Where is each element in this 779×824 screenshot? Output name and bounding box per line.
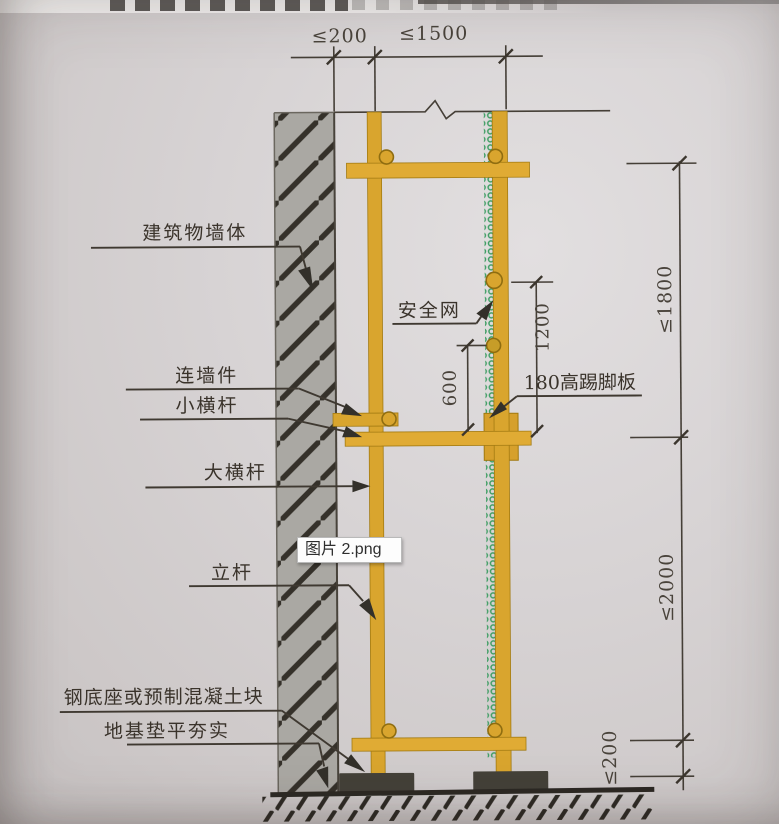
sweep-rail <box>352 737 526 751</box>
callout-toe-board: 180高踢脚板 <box>489 371 642 418</box>
coupler-icon <box>382 724 396 738</box>
dim-top-wall-gap: ≤200 <box>312 25 368 47</box>
coupler-icon <box>487 338 501 352</box>
top-dimension: ≤200 ≤1500 <box>291 22 544 112</box>
ground-hatch <box>262 794 652 821</box>
coupler-icon <box>488 149 502 163</box>
leader-arrow-icon <box>342 426 362 437</box>
base-block-right <box>473 771 548 791</box>
label-standing-pole: 立杆 <box>211 562 253 584</box>
dim-top-bay: ≤1500 <box>399 23 468 45</box>
right-dimension: ≤1800 ≤2000 ≤200 <box>595 156 700 791</box>
wall-hatch-fill <box>274 112 338 793</box>
label-building-wall: 建筑物墙体 <box>142 222 247 245</box>
leader-arrow-icon <box>352 480 370 492</box>
midrail-dimension: 600 <box>440 339 488 435</box>
top-ledger-rail <box>346 162 529 178</box>
base-block-left <box>339 773 414 792</box>
coupler-icon <box>488 723 502 737</box>
image-filename-tooltip: 图片 2.png <box>297 537 402 563</box>
dim-right-top: ≤1800 <box>654 265 676 334</box>
dim-right-middle: ≤2000 <box>656 553 678 622</box>
label-ground-compacted: 地基垫平夯实 <box>104 720 230 743</box>
scanned-diagram-photo: ≤200 ≤1500 ≤1800 ≤2000 ≤200 1200 <box>0 0 779 824</box>
label-toe-board: 180高踢脚板 <box>524 371 636 394</box>
dim-guardrail: 1200 <box>532 302 553 352</box>
coupler-icon <box>486 272 502 288</box>
scaffold-frame <box>331 111 533 775</box>
coupler-icon <box>379 150 393 164</box>
leader-arrow-icon <box>344 754 365 772</box>
label-steel-base: 钢底座或预制混凝土块 <box>64 686 264 709</box>
dim-right-bottom: ≤200 <box>599 729 621 785</box>
dim-midrail: 600 <box>440 369 461 406</box>
scaffold-elevation-drawing: ≤200 ≤1500 ≤1800 ≤2000 ≤200 1200 <box>0 0 779 824</box>
coupler-icon <box>382 412 396 426</box>
callout-safety-net: 安全网 <box>392 299 493 324</box>
label-small-crossbar: 小横杆 <box>175 395 238 417</box>
platform-ledger-rail <box>345 431 531 446</box>
leader-arrow-icon <box>341 403 362 416</box>
building-wall-section <box>274 112 338 793</box>
label-safety-net: 安全网 <box>398 300 461 322</box>
label-main-ledger: 大横杆 <box>204 462 267 484</box>
label-wall-connector: 连墙件 <box>175 365 238 387</box>
